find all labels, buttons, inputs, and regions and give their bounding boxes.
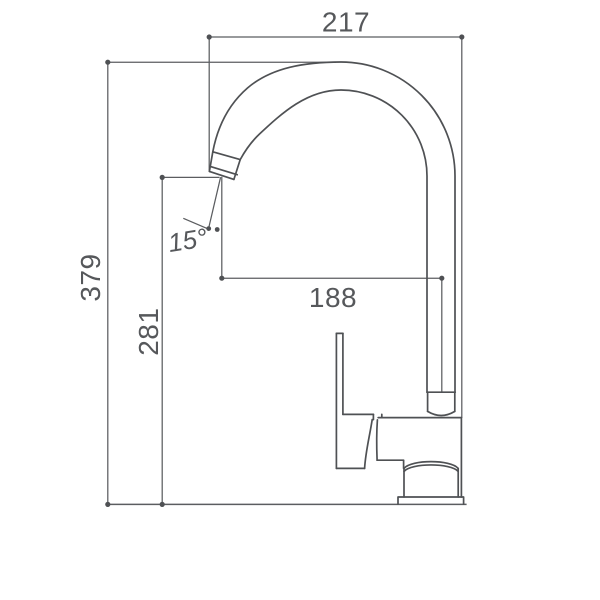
dimension-labels: 217 379 281 188 15°	[75, 7, 370, 356]
label-nozzle-angle: 15°	[166, 222, 210, 258]
dimension-endpoint-dots	[105, 34, 464, 507]
spout-inner-edge	[240, 90, 427, 392]
angle-dot	[215, 227, 220, 232]
endpoint-dot	[439, 276, 444, 281]
dome-inner-arc	[404, 465, 458, 471]
aerator-right-edge	[234, 160, 240, 180]
endpoint-dot	[160, 175, 165, 180]
label-total-height: 379	[75, 253, 106, 301]
handle-joint-curve	[365, 420, 373, 469]
faucet-dimension-drawing: 217 379 281 188 15°	[0, 0, 600, 600]
label-top-width: 217	[322, 7, 370, 38]
socket-bottom-arc	[428, 411, 455, 415]
endpoint-dot	[105, 60, 110, 65]
dimension-lines	[108, 37, 467, 504]
base-plinth	[398, 497, 464, 504]
label-spout-height: 281	[133, 308, 164, 356]
endpoint-dot	[459, 34, 464, 39]
endpoint-dot	[160, 502, 165, 507]
spout-outer-edge	[209, 62, 455, 392]
aerator-band-upper	[213, 152, 240, 160]
angle-axis-line	[209, 177, 221, 228]
endpoint-dot	[105, 502, 110, 507]
body-left-edge	[377, 420, 378, 460]
endpoint-dot	[219, 276, 224, 281]
label-spout-reach: 188	[309, 282, 357, 313]
technical-drawing-page: 217 379 281 188 15°	[0, 0, 600, 600]
angle-dot	[206, 226, 211, 231]
endpoint-dot	[207, 34, 212, 39]
